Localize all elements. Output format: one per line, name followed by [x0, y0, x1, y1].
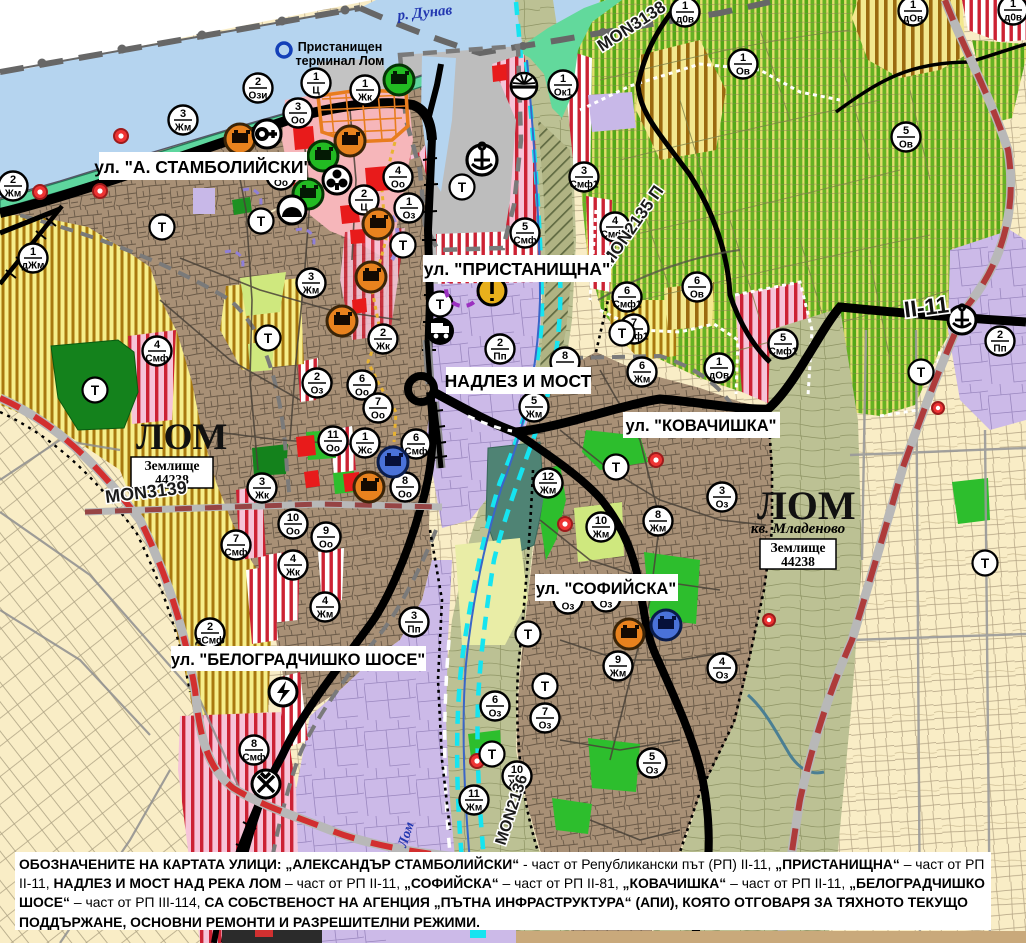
svg-text:Жм: Жм [316, 610, 333, 621]
svg-text:Оз: Оз [311, 386, 324, 397]
svg-text:6: 6 [624, 285, 630, 297]
svg-text:2: 2 [497, 337, 503, 349]
svg-text:Т: Т [91, 383, 100, 398]
svg-text:6: 6 [694, 275, 700, 287]
svg-text:4: 4 [395, 165, 402, 177]
svg-text:Смф1: Смф1 [769, 346, 798, 358]
svg-text:3: 3 [259, 476, 265, 488]
svg-text:9: 9 [615, 654, 621, 666]
svg-text:7: 7 [542, 706, 548, 718]
svg-text:8: 8 [562, 350, 568, 362]
svg-text:Жм: Жм [302, 286, 319, 297]
svg-text:Пп: Пп [993, 344, 1006, 355]
svg-text:1: 1 [362, 78, 368, 90]
svg-text:Оо: Оо [326, 444, 340, 455]
svg-text:Жк: Жк [285, 568, 301, 579]
svg-text:Т: Т [458, 180, 467, 195]
svg-text:11: 11 [468, 788, 480, 800]
svg-text:Оо: Оо [291, 116, 305, 127]
svg-text:дСмф: дСмф [195, 635, 225, 647]
svg-text:1: 1 [910, 0, 916, 11]
svg-text:Жм: Жм [525, 410, 542, 421]
svg-text:Жм: Жм [649, 524, 666, 535]
svg-text:9: 9 [323, 525, 329, 537]
svg-text:Ов: Ов [899, 140, 913, 151]
svg-text:Оз: Оз [489, 709, 502, 720]
svg-text:2: 2 [10, 174, 16, 186]
svg-text:д0в: д0в [676, 15, 694, 26]
svg-text:1: 1 [362, 431, 368, 443]
svg-text:Т: Т [917, 365, 926, 380]
svg-text:1: 1 [406, 196, 412, 208]
svg-text:2: 2 [207, 621, 213, 633]
svg-text:2: 2 [255, 76, 261, 88]
svg-text:44238: 44238 [781, 554, 815, 569]
svg-text:8: 8 [402, 475, 408, 487]
svg-text:кв. Младеново: кв. Младеново [751, 521, 845, 537]
svg-text:Смф: Смф [242, 752, 265, 764]
svg-text:Жк: Жк [357, 93, 373, 104]
svg-text:2: 2 [361, 188, 367, 200]
svg-text:Оз: Оз [716, 500, 729, 511]
svg-text:Т: Т [257, 214, 266, 229]
svg-text:4: 4 [719, 656, 726, 668]
svg-text:ул. "БЕЛОГРАДЧИШКО ШОСЕ": ул. "БЕЛОГРАДЧИШКО ШОСЕ" [171, 651, 425, 669]
svg-text:НАДЛЕЗ И МОСТ: НАДЛЕЗ И МОСТ [445, 371, 592, 391]
svg-text:ул. "А. СТАМБОЛИЙСКИ": ул. "А. СТАМБОЛИЙСКИ" [94, 156, 311, 177]
svg-text:Т: Т [436, 297, 445, 312]
svg-text:Смф1: Смф1 [613, 299, 642, 311]
svg-text:Оо: Оо [319, 540, 333, 551]
svg-text:Оо: Оо [391, 180, 405, 191]
svg-text:Т: Т [158, 220, 167, 235]
svg-text:Жм: Жм [633, 375, 650, 386]
svg-text:Жк: Жк [375, 342, 391, 353]
svg-text:11: 11 [327, 429, 339, 441]
svg-text:Жм: Жм [609, 669, 626, 680]
svg-text:6: 6 [492, 694, 498, 706]
svg-text:3: 3 [411, 610, 417, 622]
svg-text:Жм: Жм [465, 803, 482, 814]
svg-text:4: 4 [154, 339, 161, 351]
svg-text:Смф: Смф [513, 235, 536, 247]
svg-text:д0в: д0в [1004, 13, 1022, 24]
svg-text:Пп: Пп [493, 352, 506, 363]
svg-text:8: 8 [655, 509, 661, 521]
svg-text:Оз: Оз [539, 721, 552, 732]
svg-text:7: 7 [233, 533, 239, 545]
svg-text:5: 5 [780, 332, 786, 344]
svg-text:терминал Лом: терминал Лом [296, 54, 385, 68]
svg-text:6: 6 [413, 432, 419, 444]
svg-text:Ок1: Ок1 [554, 88, 573, 99]
svg-text:4: 4 [290, 553, 297, 565]
svg-text:Т: Т [981, 556, 990, 571]
svg-text:дОв: дОв [709, 371, 729, 382]
svg-text:7: 7 [375, 396, 381, 408]
svg-text:1: 1 [1010, 0, 1016, 10]
svg-text:Оо: Оо [371, 411, 385, 422]
svg-text:Оо: Оо [398, 490, 412, 501]
svg-text:Пристанищен: Пристанищен [298, 40, 383, 54]
svg-text:Жм: Жм [539, 486, 556, 497]
svg-text:10: 10 [287, 512, 299, 524]
svg-text:6: 6 [639, 360, 645, 372]
svg-text:II-11: II-11 [903, 291, 951, 322]
svg-text:3: 3 [581, 165, 587, 177]
svg-text:6: 6 [359, 373, 365, 385]
svg-text:1: 1 [716, 356, 722, 368]
svg-text:5: 5 [649, 751, 655, 763]
svg-text:1: 1 [30, 246, 36, 258]
svg-text:дОв: дОв [903, 14, 923, 25]
svg-text:5: 5 [903, 125, 909, 137]
svg-text:ул. "СОФИЙСКА": ул. "СОФИЙСКА" [536, 579, 676, 598]
svg-text:Землище: Землище [770, 540, 825, 555]
svg-text:4: 4 [322, 595, 329, 607]
svg-text:Т: Т [399, 238, 408, 253]
svg-text:Ози: Ози [249, 91, 268, 102]
svg-text:Жм: Жм [174, 123, 191, 134]
svg-text:Жс: Жс [357, 446, 373, 457]
svg-text:Смф1: Смф1 [570, 179, 599, 191]
svg-text:Оз: Оз [562, 602, 575, 613]
svg-text:Пп: Пп [407, 625, 420, 636]
svg-text:Жм: Жм [4, 189, 21, 200]
svg-text:Т: Т [264, 331, 273, 346]
svg-text:Т: Т [488, 747, 497, 762]
svg-text:1: 1 [313, 71, 319, 83]
svg-text:3: 3 [295, 101, 301, 113]
svg-text:ул. "КОВАЧИШКА": ул. "КОВАЧИШКА" [626, 417, 777, 435]
svg-text:2: 2 [380, 327, 386, 339]
svg-text:3: 3 [308, 271, 314, 283]
svg-text:Жк: Жк [254, 491, 270, 502]
svg-text:Оз: Оз [403, 211, 416, 222]
svg-text:ул. "ПРИСТАНИЩНА": ул. "ПРИСТАНИЩНА" [424, 259, 611, 279]
svg-text:4: 4 [612, 215, 619, 227]
svg-text:3: 3 [180, 108, 186, 120]
svg-text:2: 2 [314, 371, 320, 383]
svg-text:10: 10 [595, 515, 607, 527]
svg-text:5: 5 [531, 395, 537, 407]
svg-text:Землище: Землище [144, 458, 199, 473]
svg-text:3: 3 [719, 485, 725, 497]
svg-text:1: 1 [560, 73, 566, 85]
svg-text:1: 1 [740, 52, 746, 64]
svg-text:дЖм: дЖм [22, 261, 45, 272]
svg-text:Жм: Жм [592, 530, 609, 541]
svg-text:5: 5 [522, 221, 528, 233]
svg-text:Смф: Смф [224, 547, 247, 559]
svg-text:Оо: Оо [355, 388, 369, 399]
svg-text:2: 2 [997, 329, 1003, 341]
svg-text:Оз: Оз [646, 766, 659, 777]
svg-text:Оо: Оо [286, 527, 300, 538]
svg-text:Т: Т [618, 326, 627, 341]
svg-text:Т: Т [612, 460, 621, 475]
svg-text:1: 1 [682, 0, 688, 12]
svg-text:12: 12 [542, 471, 554, 483]
svg-text:Ов: Ов [690, 290, 704, 301]
svg-text:Ц: Ц [312, 86, 320, 97]
svg-text:Т: Т [541, 679, 550, 694]
svg-text:8: 8 [251, 738, 257, 750]
svg-text:Смф: Смф [145, 353, 168, 365]
svg-text:Оз: Оз [716, 671, 729, 682]
svg-text:Ов: Ов [736, 67, 750, 78]
svg-text:Оз: Оз [600, 600, 613, 611]
svg-text:Т: Т [524, 627, 533, 642]
svg-text:ЛОМ: ЛОМ [136, 417, 227, 458]
